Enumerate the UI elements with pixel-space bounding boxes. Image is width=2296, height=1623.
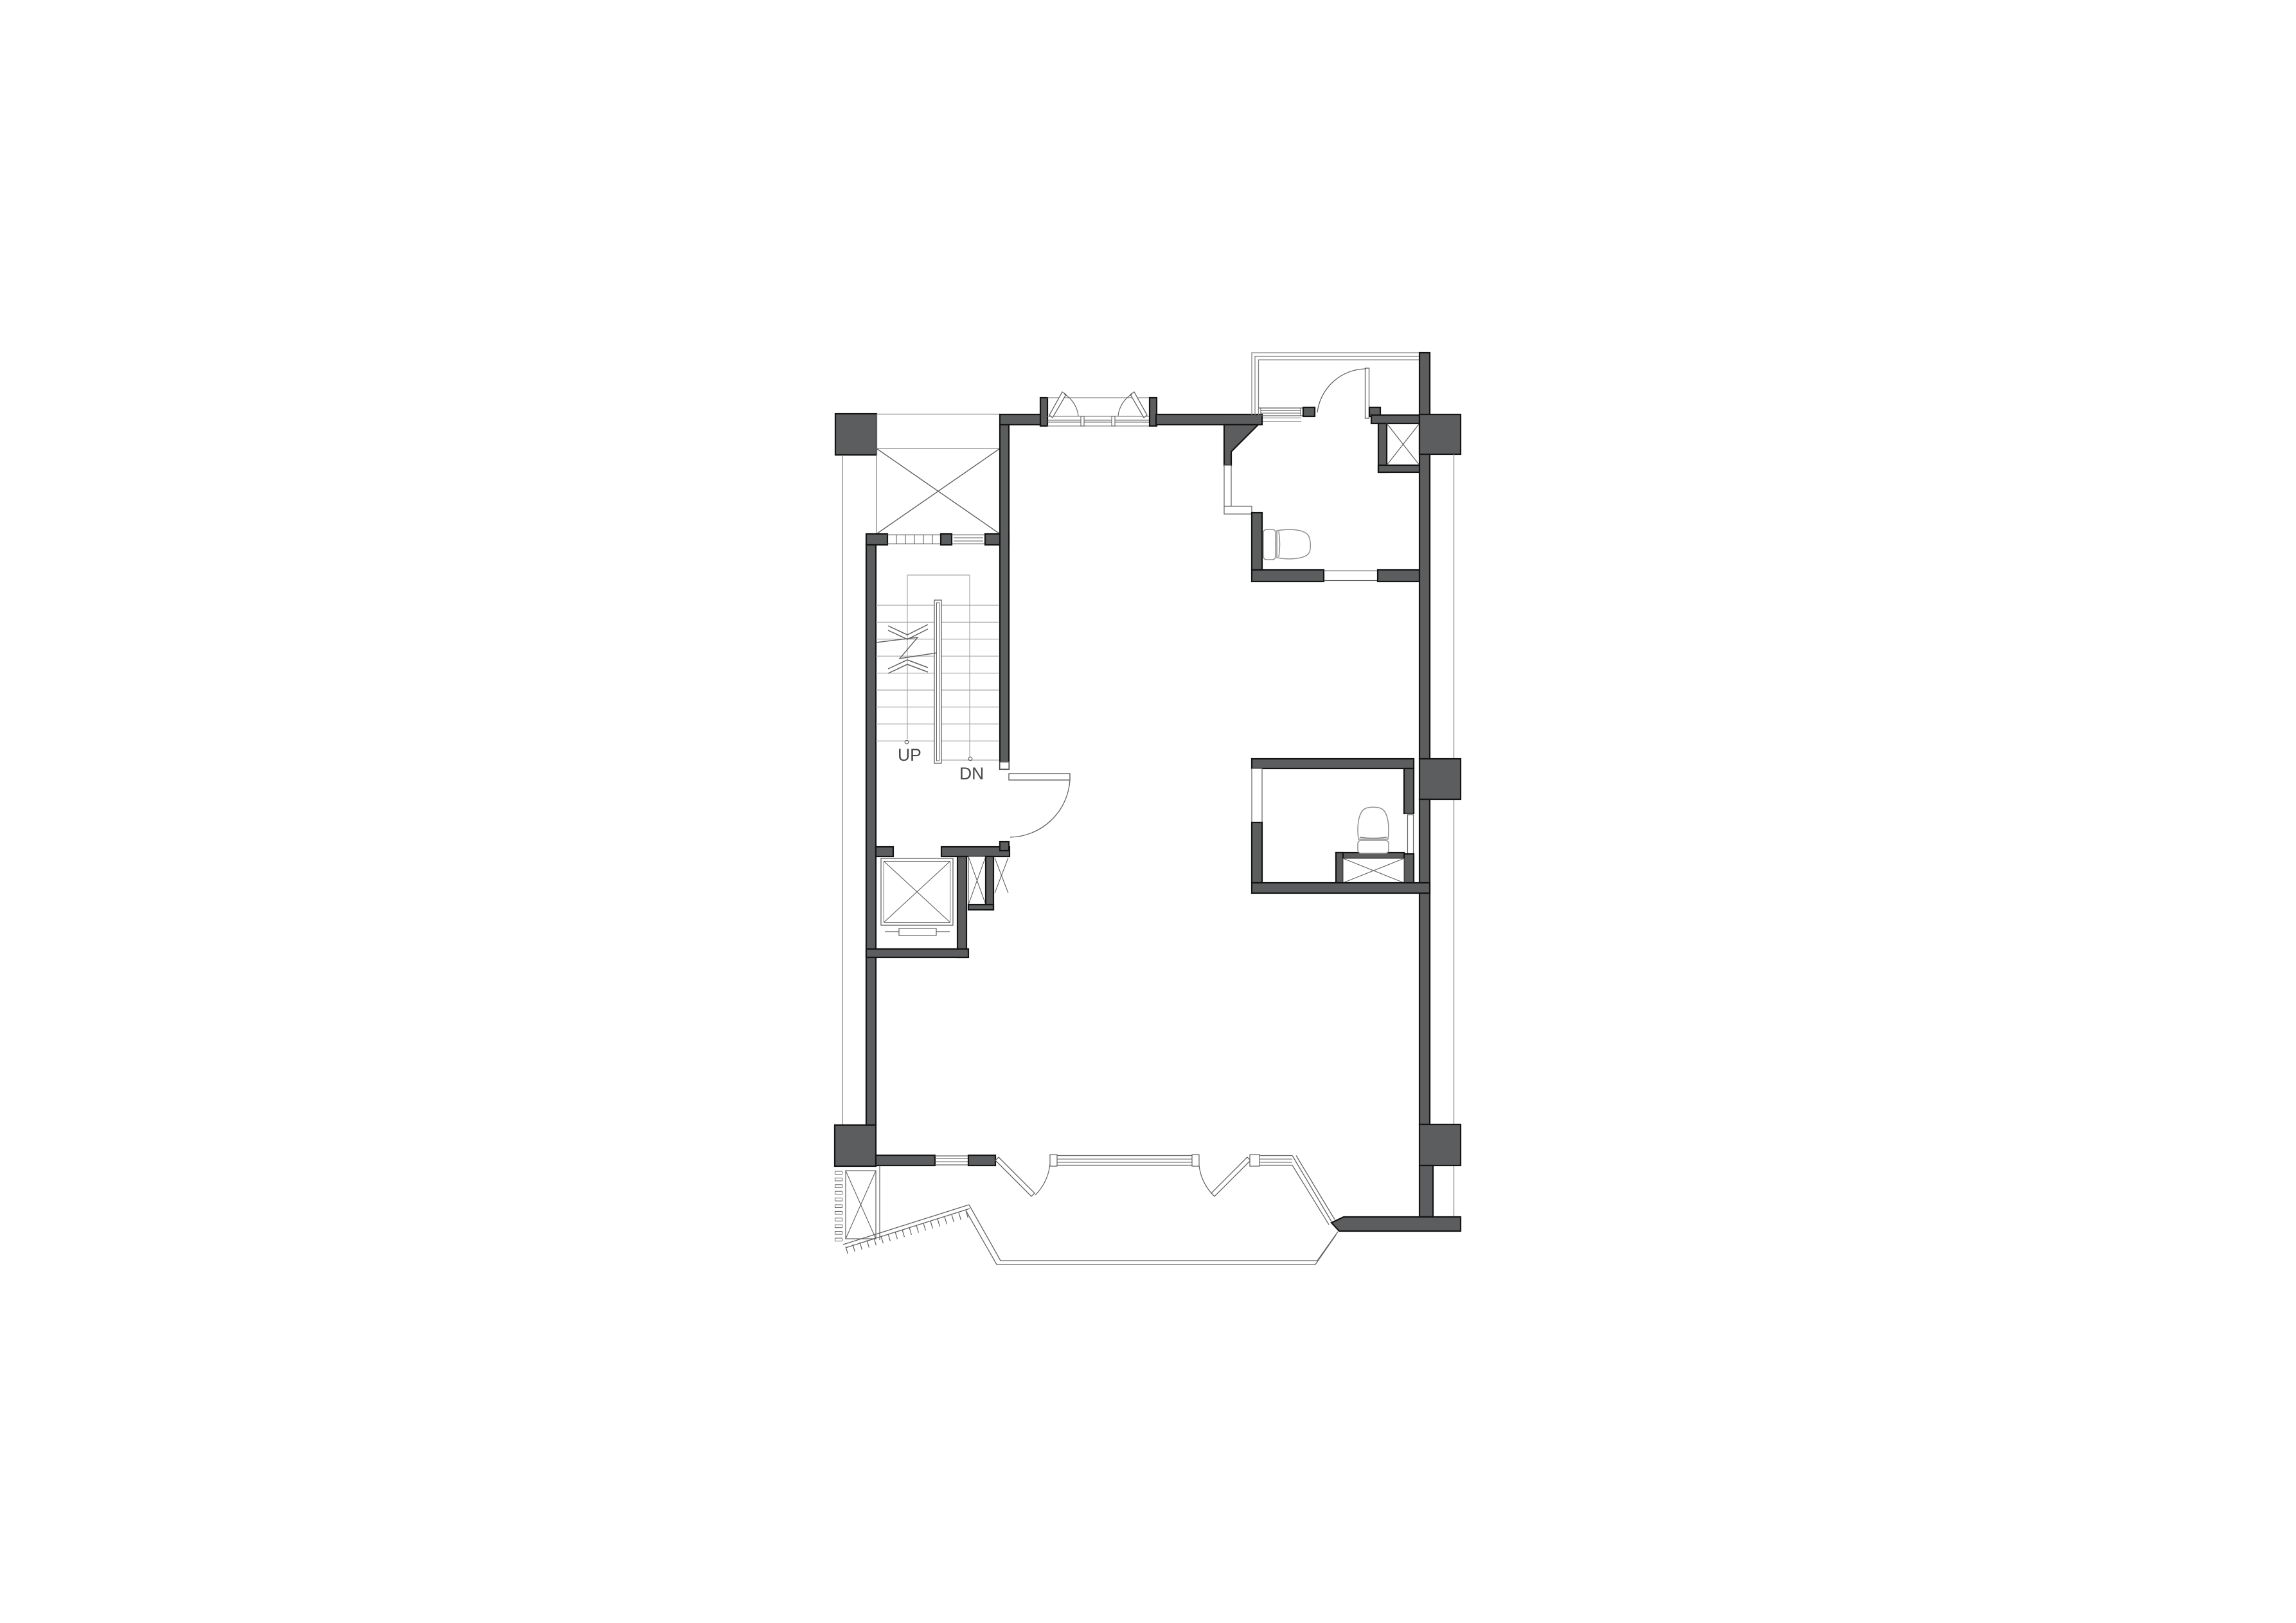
svg-text:UP: UP — [898, 745, 921, 765]
svg-text:DN: DN — [959, 764, 984, 783]
